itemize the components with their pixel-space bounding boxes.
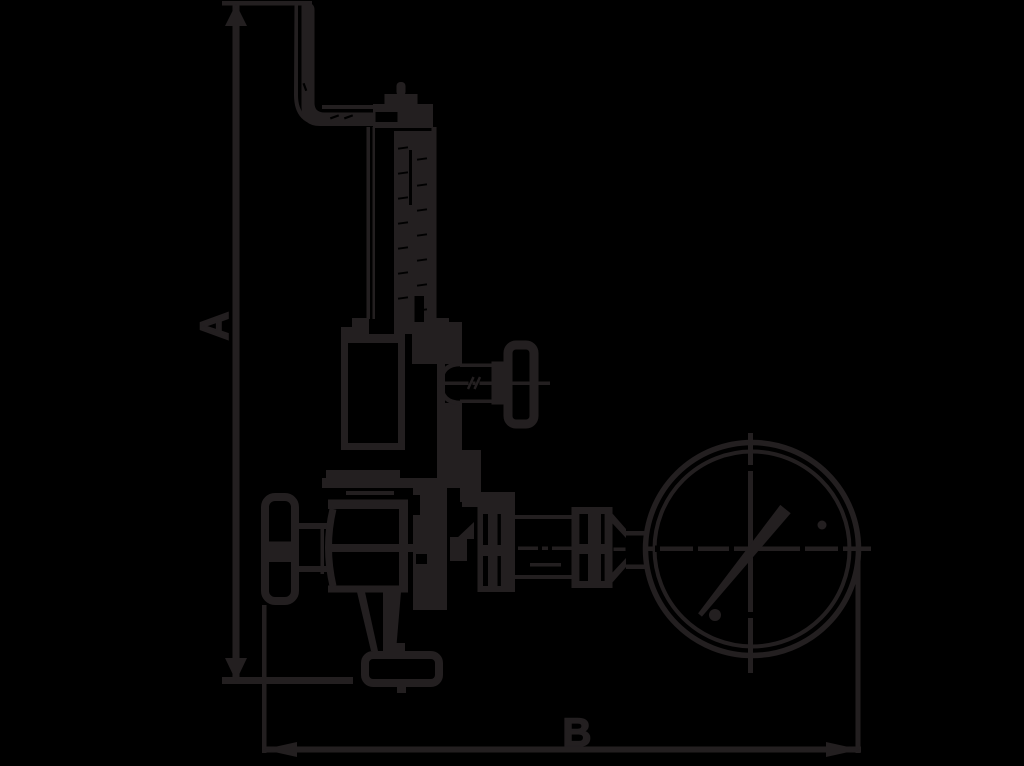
svg-text:B: B: [563, 711, 592, 755]
svg-text:A: A: [193, 312, 237, 341]
